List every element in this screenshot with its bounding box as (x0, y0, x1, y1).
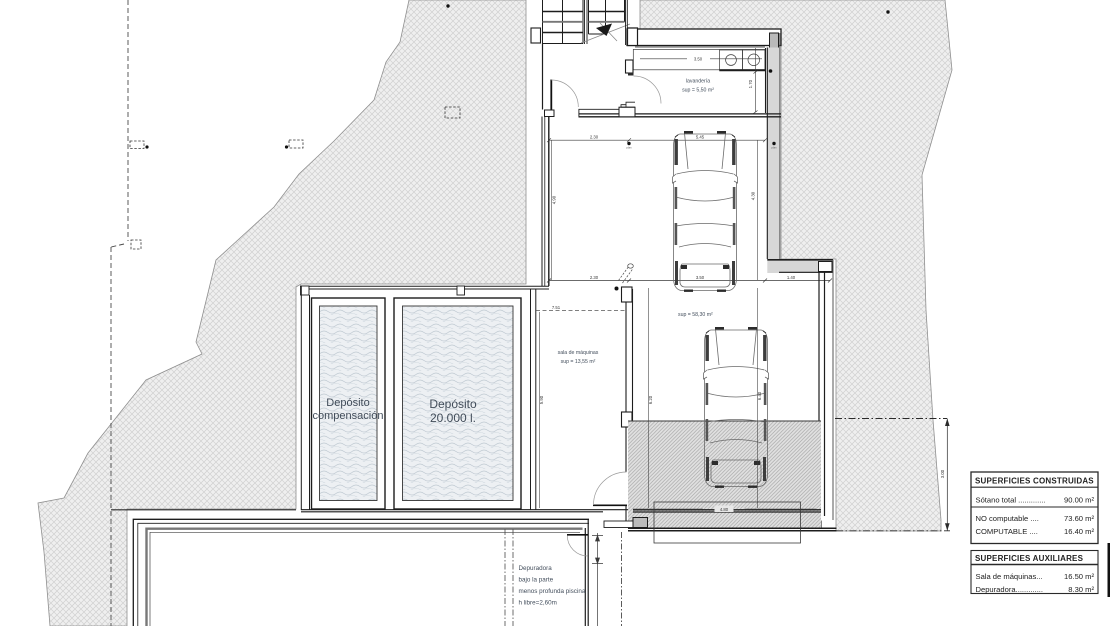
svg-text:8.30 m²: 8.30 m² (1068, 585, 1094, 594)
svg-text:sup = 13,55 m²: sup = 13,55 m² (561, 359, 596, 365)
svg-text:16.50 m²: 16.50 m² (1064, 572, 1094, 581)
svg-text:3.50: 3.50 (694, 57, 703, 62)
svg-text:bajo la parte: bajo la parte (519, 577, 554, 584)
svg-text:Depuradora: Depuradora (519, 565, 553, 572)
svg-text:Sala de máquinas...: Sala de máquinas... (976, 572, 1043, 581)
svg-text:plan: plan (627, 146, 632, 150)
svg-text:4.30: 4.30 (751, 191, 756, 200)
svg-text:Sótano total .............: Sótano total ............. (976, 496, 1046, 505)
svg-text:sup = 58,30 m²: sup = 58,30 m² (678, 312, 713, 318)
svg-text:h libre=2,60m: h libre=2,60m (519, 600, 557, 607)
svg-text:menos profunda piscina: menos profunda piscina (519, 588, 586, 595)
svg-text:3.00: 3.00 (940, 469, 945, 478)
svg-text:Depuradora.............: Depuradora............. (976, 585, 1044, 594)
svg-text:6.20: 6.20 (648, 395, 653, 404)
svg-text:7.51: 7.51 (552, 305, 561, 310)
svg-text:1.40: 1.40 (787, 275, 796, 280)
svg-text:4.80: 4.80 (720, 507, 729, 512)
svg-text:4.90: 4.90 (552, 195, 557, 204)
svg-text:lavandería: lavandería (686, 79, 710, 85)
svg-text:20.000 l.: 20.000 l. (430, 411, 476, 425)
svg-text:1.70: 1.70 (748, 79, 753, 88)
svg-text:SUPERFICIES CONSTRUIDAS: SUPERFICIES CONSTRUIDAS (975, 477, 1094, 486)
svg-text:plan: plan (772, 146, 777, 150)
svg-text:Depósito: Depósito (326, 397, 369, 409)
svg-text:COMPUTABLE ....: COMPUTABLE .... (976, 527, 1038, 536)
svg-text:2.30: 2.30 (590, 275, 599, 280)
svg-text:SUPERFICIES AUXILIARES: SUPERFICIES AUXILIARES (975, 554, 1084, 563)
svg-text:3.50: 3.50 (696, 275, 705, 280)
svg-text:5.45: 5.45 (696, 135, 705, 140)
svg-text:90.00 m²: 90.00 m² (1064, 496, 1094, 505)
svg-text:2.30: 2.30 (590, 135, 599, 140)
svg-text:sup = 5,50 m²: sup = 5,50 m² (682, 88, 714, 94)
svg-text:16.40 m²: 16.40 m² (1064, 527, 1094, 536)
svg-text:5.90: 5.90 (539, 395, 544, 404)
svg-text:NO computable ....: NO computable .... (976, 514, 1039, 523)
svg-text:compensación: compensación (313, 410, 384, 422)
svg-text:6.40: 6.40 (757, 391, 762, 400)
svg-text:Depósito: Depósito (429, 397, 477, 411)
svg-text:sala de máquinas: sala de máquinas (558, 350, 599, 356)
svg-text:73.60 m²: 73.60 m² (1064, 514, 1094, 523)
